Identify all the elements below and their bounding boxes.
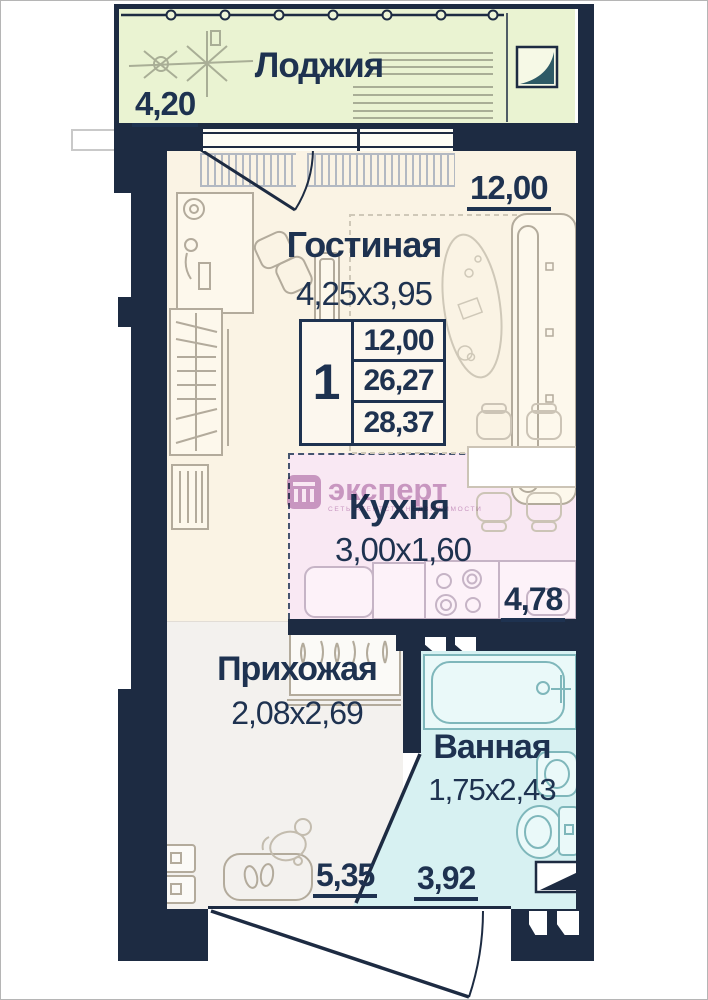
kitchen-dims: 3,00x1,60: [293, 533, 513, 566]
wall-loggia-left: [114, 4, 119, 129]
agency-brand: эксперт: [328, 475, 482, 504]
living-area-value: 12,00: [354, 322, 443, 362]
bath-label: Ванная: [412, 730, 572, 764]
wall-right: [576, 129, 594, 961]
wall-left-pilaster-top: [114, 129, 131, 193]
radiator-right: [307, 153, 455, 187]
hall-dims: 2,08x2,69: [177, 697, 417, 729]
wall-top-right: [460, 129, 594, 151]
wall-loggia-right: [578, 4, 594, 129]
wall-left-pilaster-mid: [118, 297, 131, 327]
window-frame-line: [197, 132, 460, 134]
floor-plan-image: 1 12,00 26,27 28,37 Лоджия 4,20 12,00 Го…: [0, 0, 708, 1000]
apartment-info-table: 1 12,00 26,27 28,37: [299, 319, 446, 446]
bath-dims: 1,75x2,43: [402, 774, 582, 805]
usable-area-value: 26,27: [354, 362, 443, 402]
agency-logo-icon: [287, 475, 321, 509]
wall-left-pilaster-low: [118, 689, 131, 961]
living-label: Гостиная: [239, 227, 489, 263]
entrance-door-icon: [211, 911, 483, 997]
kitchen-area: 4,78: [501, 583, 565, 622]
hall-label: Прихожая: [177, 652, 417, 686]
wall-bottom-right: [511, 909, 594, 961]
wall-bottom-left: [131, 909, 208, 961]
adjacent-ledge: [71, 129, 119, 151]
living-area: 12,00: [467, 171, 551, 211]
agency-watermark-text: эксперт СЕТЬ АГЕНТСТВ НЕДВИЖИМОСТИ: [328, 475, 482, 513]
window-jamb: [197, 129, 203, 151]
wall-left: [131, 129, 167, 961]
living-dims: 4,25x3,95: [239, 277, 489, 310]
window-jamb: [453, 129, 460, 151]
window-divider: [357, 129, 360, 151]
loggia-area: 4,20: [132, 87, 198, 127]
agency-tagline: СЕТЬ АГЕНТСТВ НЕДВИЖИМОСТИ: [328, 506, 482, 513]
wall-roof-edge: [114, 4, 584, 9]
hall-area: 5,35: [313, 859, 377, 898]
room-count: 1: [302, 322, 354, 443]
agency-watermark: эксперт СЕТЬ АГЕНТСТВ НЕДВИЖИМОСТИ: [287, 475, 482, 513]
window-frame-line: [197, 146, 460, 148]
entrance-threshold: [208, 906, 511, 909]
radiator-left: [200, 153, 296, 187]
bath-area: 3,92: [414, 862, 478, 901]
loggia-label: Лоджия: [219, 48, 419, 83]
total-area-value: 28,37: [354, 403, 443, 443]
